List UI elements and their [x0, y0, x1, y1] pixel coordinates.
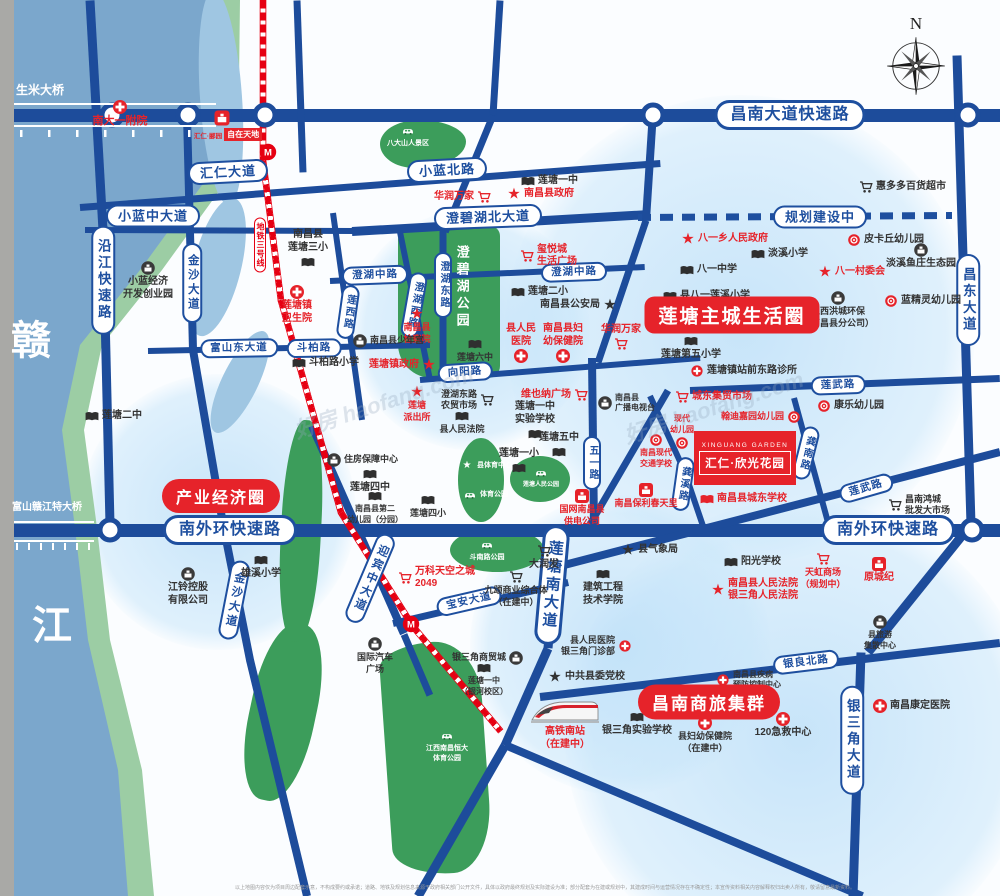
star-icon: ★: [681, 232, 694, 247]
fushan-bridge-ticks: [16, 543, 94, 550]
road-label: 规划建设中: [773, 206, 867, 229]
kindergarten-icon: [848, 234, 860, 246]
poi-label: 昌南鸿城批发大市场: [905, 494, 950, 517]
poi-label: 120急救中心: [713, 727, 853, 740]
poi-label: 八一中学: [697, 264, 737, 277]
shopping-cart-icon: [477, 191, 491, 204]
school-icon: [512, 463, 527, 473]
poi-label: 南昌县城东学校: [717, 493, 787, 506]
poi-label: 淡溪小学: [768, 248, 808, 261]
metro-logo-icon: M: [403, 616, 420, 633]
star-icon: ★: [463, 461, 472, 471]
project-name-en: XINGUANG GARDEN: [702, 442, 789, 449]
star-icon: ★: [548, 670, 561, 685]
road: [490, 0, 504, 115]
school-icon: [301, 257, 316, 267]
compass: N: [880, 14, 952, 103]
shopping-cart-icon: [859, 181, 873, 194]
road-label: 富山东大道: [200, 338, 278, 358]
poi-label: 莲塘一小: [449, 448, 589, 461]
road-label: 小蓝中大道: [106, 205, 200, 228]
star-icon: ★: [818, 265, 831, 280]
zone-label: 莲塘主城生活圈: [644, 297, 819, 334]
logo-slogan: 自在天地: [224, 128, 262, 141]
river-name: 赣: [11, 308, 53, 366]
school-icon: [363, 469, 378, 479]
school-icon: [751, 249, 766, 259]
poi-label: 莲塘第五小学: [621, 349, 761, 362]
road-label: 澄湖东路: [434, 252, 452, 318]
poi-label: 蓝精灵幼儿园: [901, 295, 961, 308]
project-marker: XINGUANG GARDEN 汇仁·欣光花园: [694, 431, 796, 485]
park-car-icon: [441, 732, 453, 741]
shopping-cart-icon: [888, 499, 902, 512]
poi-label: 斗柏路小学: [309, 357, 359, 370]
poi-label: 南昌县公安局: [540, 299, 600, 312]
school-icon: [254, 555, 269, 565]
kindergarten-icon: [676, 437, 688, 449]
kindergarten-icon: [818, 400, 830, 412]
poi-label: 惠多多百货超市: [876, 181, 946, 194]
poi-label: 县气象局: [638, 544, 678, 557]
poi-label: 维也纳广场: [521, 389, 571, 402]
poi-label: 莲塘人民公园: [471, 481, 611, 490]
poi-label: 莲塘镇卫生院: [227, 300, 367, 325]
road-label: 斗柏路: [287, 338, 342, 357]
hospital-icon: [556, 349, 571, 364]
poi-label: 国网南昌县供电公司: [512, 504, 652, 527]
park-car-icon: [464, 491, 476, 500]
poi-label: 南昌县妇幼保健院: [493, 323, 633, 348]
park-car-icon: [535, 469, 547, 478]
project-name-cn: 汇仁·欣光花园: [699, 451, 791, 475]
bridge-name: 生米大桥: [16, 81, 64, 98]
poi-label: 住房保障中心: [344, 454, 398, 466]
government-building-icon: [831, 291, 845, 305]
poi-label: 南昌县第二幼儿园（分园）: [305, 504, 445, 525]
map-edge: [0, 0, 14, 896]
poi-label: 国际汽车广场: [305, 652, 445, 675]
poi-label: 玺悦城生活广场: [537, 244, 577, 269]
road-label: 南外环快速路: [163, 515, 297, 545]
school-icon: [85, 411, 100, 421]
government-building-icon: [353, 334, 367, 348]
government-building-icon: [873, 615, 887, 629]
road: [294, 0, 307, 172]
poi-label: 南昌县政府: [524, 188, 574, 201]
shopping-cart-icon: [816, 553, 830, 566]
bridge-name: 富山赣江特大桥: [12, 498, 82, 513]
zone-label: 产业经济圈: [162, 479, 280, 513]
poi-label: 南昌康定医院: [890, 700, 950, 713]
road-label: 小蓝北路: [406, 156, 487, 183]
shopping-cart-icon: [398, 572, 412, 585]
government-building-icon: [509, 651, 523, 665]
fushan-bridge: [14, 540, 94, 542]
poi-label: 南昌县莲塘三小: [238, 229, 378, 254]
svg-text:M: M: [407, 620, 415, 631]
poi-label: 莲塘一中: [538, 175, 578, 188]
hospital-icon: [113, 100, 128, 115]
road-label: 莲武路: [810, 375, 865, 395]
poi-label: 小蓝经济开发创业园: [78, 276, 218, 301]
poi-label: 体育公园: [480, 490, 508, 500]
poi-label: 莲塘一中（银河校区）: [414, 676, 554, 697]
poi-label: 南昌县人民法院银三角人民法院: [728, 578, 798, 603]
park-car-icon: [481, 541, 493, 550]
hospital-icon: [619, 640, 631, 652]
poi-label: 江铃控股有限公司: [118, 582, 258, 607]
poi-label: 康乐幼儿园: [834, 400, 884, 413]
road-label: 南外环快速路: [821, 515, 955, 545]
hospital-icon: [290, 285, 305, 300]
hospital-icon: [691, 365, 703, 377]
map-disclaimer: 以上地图内容仅为项目周边配套示意，不构成要约或承诺；道路、地铁及规划信息来源于政…: [235, 884, 997, 891]
poi-label: 原城纪: [809, 572, 949, 585]
road-junction: [956, 103, 981, 128]
poi-label: 南大一附院: [50, 115, 190, 129]
shengmi-bridge-ticks: [20, 130, 210, 137]
developer-logo: 汇仁·郦园 自在天地: [186, 112, 270, 141]
road-label: 银三角大道: [840, 686, 864, 795]
building-icon: [639, 483, 653, 497]
park-car-icon: [402, 127, 414, 136]
government-building-icon: [914, 243, 928, 257]
shopping-cart-icon: [509, 571, 523, 584]
poi-label: 县旅游集散中心: [810, 630, 950, 651]
school-icon: [292, 358, 307, 368]
school-icon: [477, 663, 492, 673]
school-icon: [684, 336, 699, 346]
poi-label: 八一村委会: [835, 266, 885, 279]
high-speed-train-icon: [529, 697, 601, 725]
hospital-icon: [873, 699, 888, 714]
poi-label: 莲塘二小: [528, 286, 568, 299]
shopping-cart-icon: [520, 250, 534, 263]
compass-rose-icon: [884, 34, 948, 98]
poi-label: 莲塘六中: [405, 352, 545, 364]
road-label: 澄湖中路: [342, 265, 409, 286]
building-icon: [215, 111, 230, 126]
road-junction: [641, 103, 666, 128]
zone-label: 昌南商旅集群: [638, 685, 780, 720]
school-icon: [455, 411, 470, 421]
poi-label: 莲塘一中实验学校: [465, 401, 605, 426]
school-icon: [468, 339, 483, 349]
road-label: 汇仁大道: [187, 158, 268, 185]
svg-text:M: M: [264, 148, 272, 159]
shopping-cart-icon: [574, 389, 588, 402]
poi-label: 雄溪小学: [191, 568, 331, 581]
star-icon: ★: [410, 307, 423, 322]
poi-label: 中共县委党校: [565, 671, 625, 684]
government-building-icon: [368, 637, 382, 651]
poi-label: 建筑工程技术学院: [533, 582, 673, 607]
logo-brand: 汇仁·郦园: [194, 130, 222, 140]
school-icon: [596, 569, 611, 579]
park-label: 澄碧湖公园: [454, 245, 470, 330]
government-building-icon: [327, 453, 341, 467]
star-icon: ★: [507, 187, 520, 202]
poi-label: 莲塘二中: [102, 410, 142, 423]
star-icon: ★: [621, 543, 634, 558]
road-label: 澄碧湖北大道: [434, 204, 543, 231]
poi-label: 斗南路公园: [417, 553, 557, 563]
poi-label: 八一乡人民政府: [698, 233, 768, 246]
poi-label: 华润万家: [434, 191, 474, 204]
poi-label: 县人民法院: [392, 424, 532, 436]
compass-north-label: N: [880, 14, 952, 34]
building-icon: [872, 557, 886, 571]
river-name: 江: [32, 593, 74, 651]
star-icon: ★: [711, 583, 724, 598]
location-map: XINGUANG GARDEN 汇仁·欣光花园 汇仁·郦园 自在天地 N: [0, 0, 1000, 896]
school-icon: [368, 491, 383, 501]
school-icon: [521, 176, 536, 186]
metro-logo-icon: M: [260, 144, 277, 161]
fushan-bridge: [14, 521, 94, 523]
school-icon: [680, 265, 695, 275]
poi-label: 八大山人景区: [338, 139, 478, 149]
school-icon: [511, 287, 526, 297]
star-icon: ★: [603, 298, 616, 313]
government-building-icon: [141, 261, 155, 275]
kindergarten-icon: [788, 411, 800, 423]
road-label: 昌南大道快速路: [714, 100, 865, 130]
poi-label: 江西南昌恒大体育公园: [377, 744, 517, 763]
poi-label: 南昌县少年宫: [370, 335, 424, 347]
poi-label: 县人民医院银三角门诊部: [561, 635, 615, 658]
road-junction: [960, 518, 985, 543]
school-icon: [724, 557, 739, 567]
poi-label: 县体育中心: [477, 461, 512, 471]
road-junction: [98, 518, 123, 543]
building-icon: [575, 489, 589, 503]
hospital-icon: [776, 712, 791, 727]
